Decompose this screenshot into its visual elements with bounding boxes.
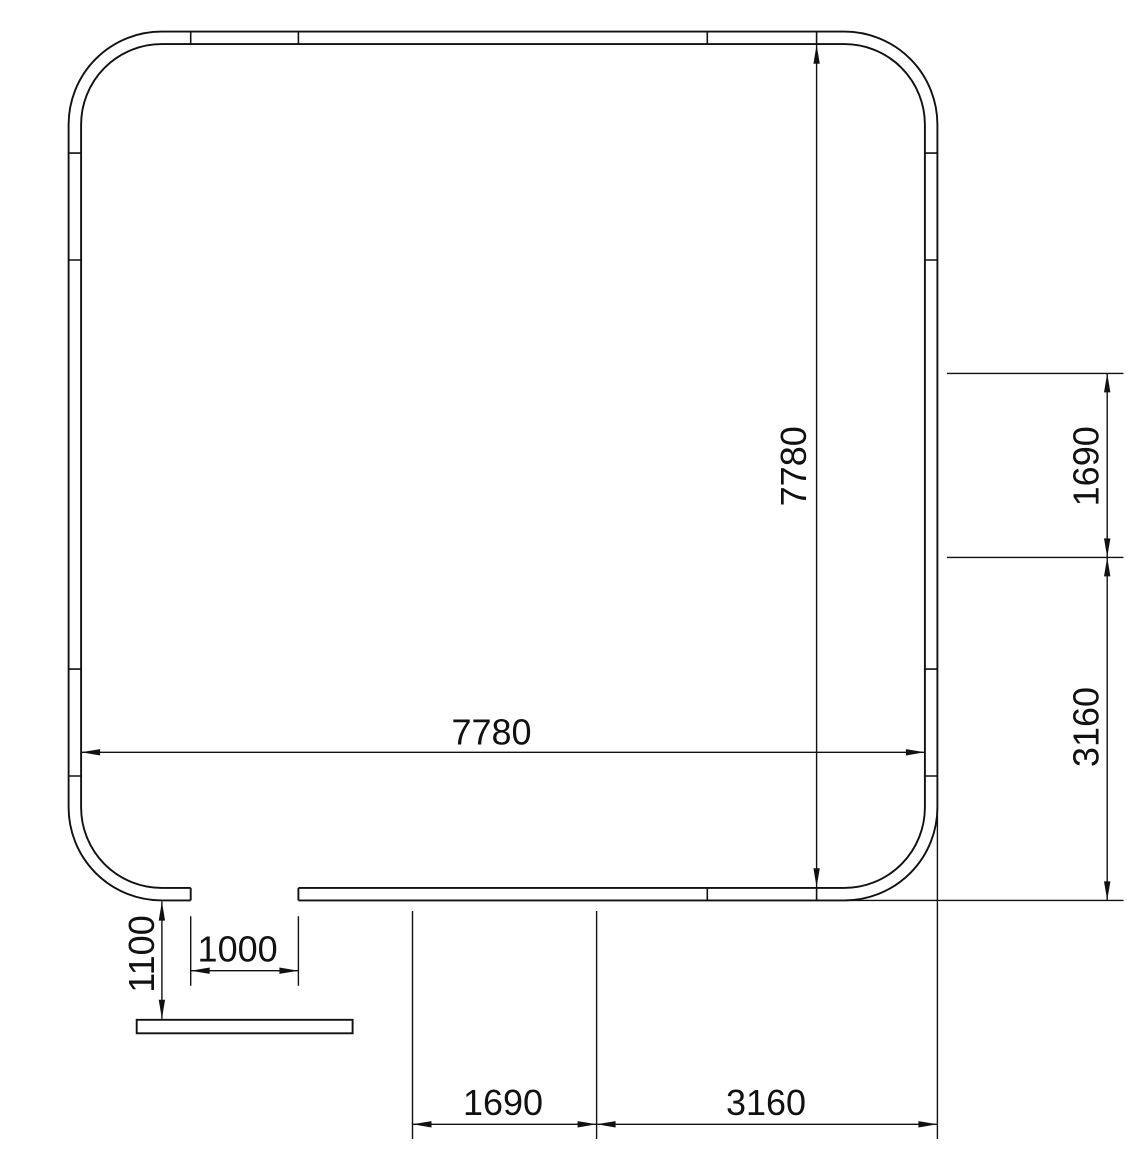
svg-text:1690: 1690	[1066, 426, 1107, 506]
svg-text:1690: 1690	[463, 1082, 543, 1123]
svg-text:1100: 1100	[121, 915, 162, 992]
svg-text:7780: 7780	[451, 711, 531, 752]
svg-text:1000: 1000	[198, 929, 278, 970]
svg-text:3160: 3160	[726, 1082, 806, 1123]
svg-text:3160: 3160	[1066, 687, 1107, 767]
svg-text:7780: 7780	[773, 426, 814, 506]
